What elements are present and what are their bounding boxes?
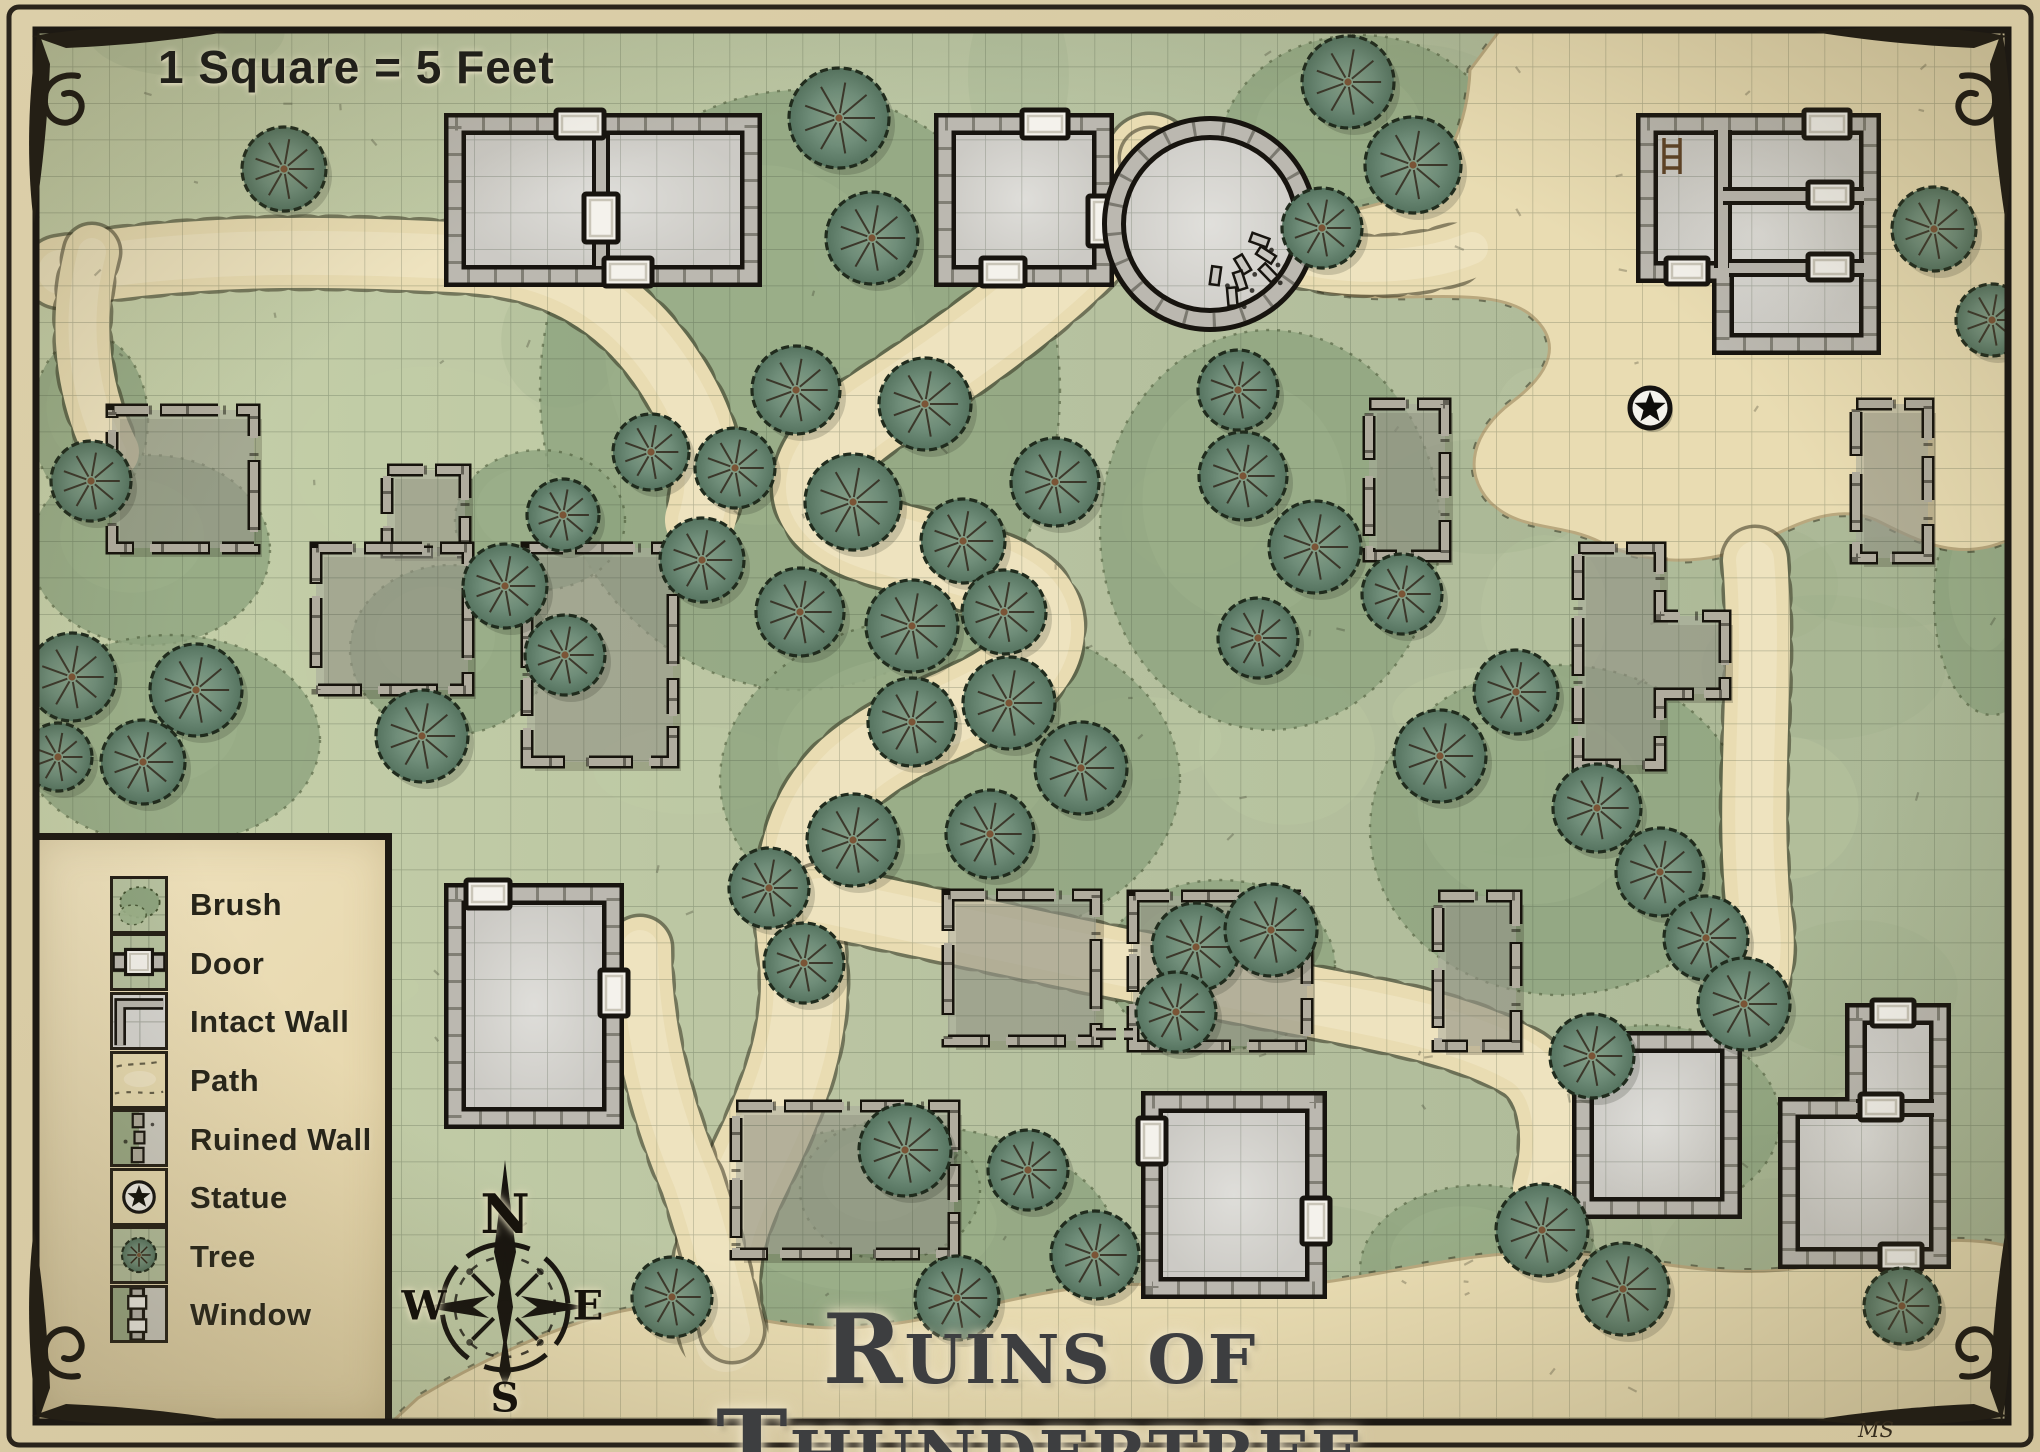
legend-item-label: Window	[190, 1297, 312, 1333]
legend-item-path: Path	[110, 1052, 372, 1111]
legend-item-window: Window	[110, 1286, 372, 1345]
ruined-wall-swatch	[110, 1109, 168, 1167]
legend-item-statue: Statue	[110, 1169, 372, 1228]
legend-item-label: Statue	[190, 1180, 288, 1216]
tree-swatch	[110, 1226, 168, 1284]
legend-item-intact-wall: Intact Wall	[110, 993, 372, 1052]
legend-item-label: Path	[190, 1063, 259, 1099]
scale-note: 1 Square = 5 Feet	[158, 40, 555, 94]
building-ruin-c	[1369, 404, 1453, 565]
building-ruin-sc-a	[948, 895, 1104, 1050]
legend-item-door: Door	[110, 935, 372, 994]
building-hall-nw	[455, 110, 759, 286]
statue-icon	[1630, 388, 1673, 432]
artist-signature: MS	[1858, 1418, 1894, 1442]
compass-west-label: W	[402, 1283, 447, 1330]
legend-item-brush: Brush	[110, 876, 372, 935]
legend-panel: BrushDoorIntact WallPathRuined WallStatu…	[36, 833, 392, 1422]
compass-north-label: N	[480, 1182, 529, 1246]
door-swatch	[110, 933, 168, 991]
legend-item-label: Door	[190, 946, 264, 982]
building-ruin-wm-b	[316, 548, 476, 699]
brush-swatch	[110, 876, 168, 934]
window-swatch	[110, 1285, 168, 1343]
thundertree-map-page: BrushDoorIntact WallPathRuined WallStatu…	[0, 0, 2040, 1452]
building-house-s	[1138, 1102, 1330, 1297]
path-swatch	[110, 1051, 168, 1109]
legend-item-label: Intact Wall	[190, 1004, 349, 1040]
legend-rows: BrushDoorIntact WallPathRuined WallStatu…	[110, 876, 372, 1345]
intact-wall-swatch	[110, 992, 168, 1050]
building-tower-house	[945, 110, 1116, 286]
compass-south-label: S	[491, 1375, 520, 1422]
legend-item-label: Tree	[190, 1239, 256, 1275]
map-title: Ruins of Thundertree	[520, 1302, 1560, 1452]
building-barn-sw	[455, 880, 628, 1127]
statue-swatch	[110, 1168, 168, 1226]
legend-item-ruined-wall: Ruined Wall	[110, 1110, 372, 1169]
legend-item-tree: Tree	[110, 1228, 372, 1287]
building-ruin-e	[1856, 404, 1936, 567]
building-ruin-sc-c	[1438, 896, 1524, 1055]
legend-item-label: Ruined Wall	[190, 1122, 372, 1158]
legend-item-label: Brush	[190, 887, 282, 923]
